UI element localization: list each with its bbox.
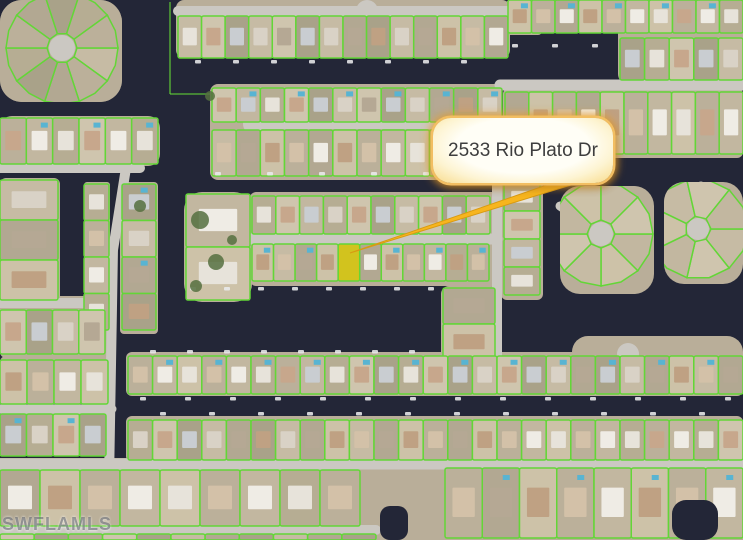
- highlighted-parcel[interactable]: [338, 244, 360, 281]
- mls-watermark: SWFLAMLS: [2, 514, 112, 535]
- address-callout-label: 2533 Rio Plato Dr: [448, 140, 598, 162]
- aerial-map-view[interactable]: 2533 Rio Plato Dr SWFLAMLS: [0, 0, 743, 540]
- address-callout: 2533 Rio Plato Dr: [433, 118, 613, 183]
- parcel-map-canvas[interactable]: [0, 0, 743, 540]
